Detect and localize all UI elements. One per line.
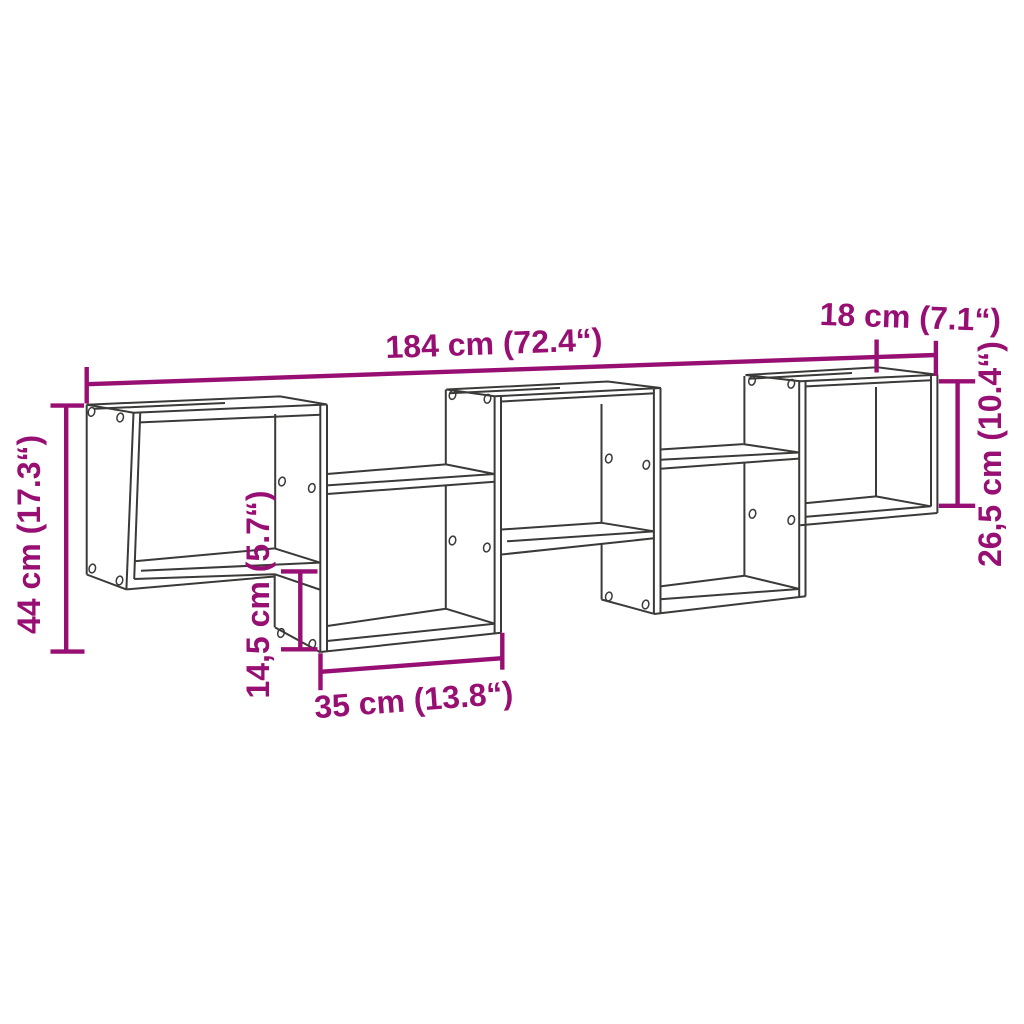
svg-text:44 cm (17.3“): 44 cm (17.3“) (11, 435, 47, 634)
svg-text:18 cm (7.1“): 18 cm (7.1“) (819, 296, 1002, 338)
svg-text:35 cm (13.8“): 35 cm (13.8“) (313, 674, 514, 725)
svg-text:14,5 cm (5.7“): 14,5 cm (5.7“) (240, 490, 276, 698)
svg-text:184 cm (72.4“): 184 cm (72.4“) (385, 321, 603, 365)
svg-text:26,5 cm (10.4“): 26,5 cm (10.4“) (972, 341, 1008, 567)
